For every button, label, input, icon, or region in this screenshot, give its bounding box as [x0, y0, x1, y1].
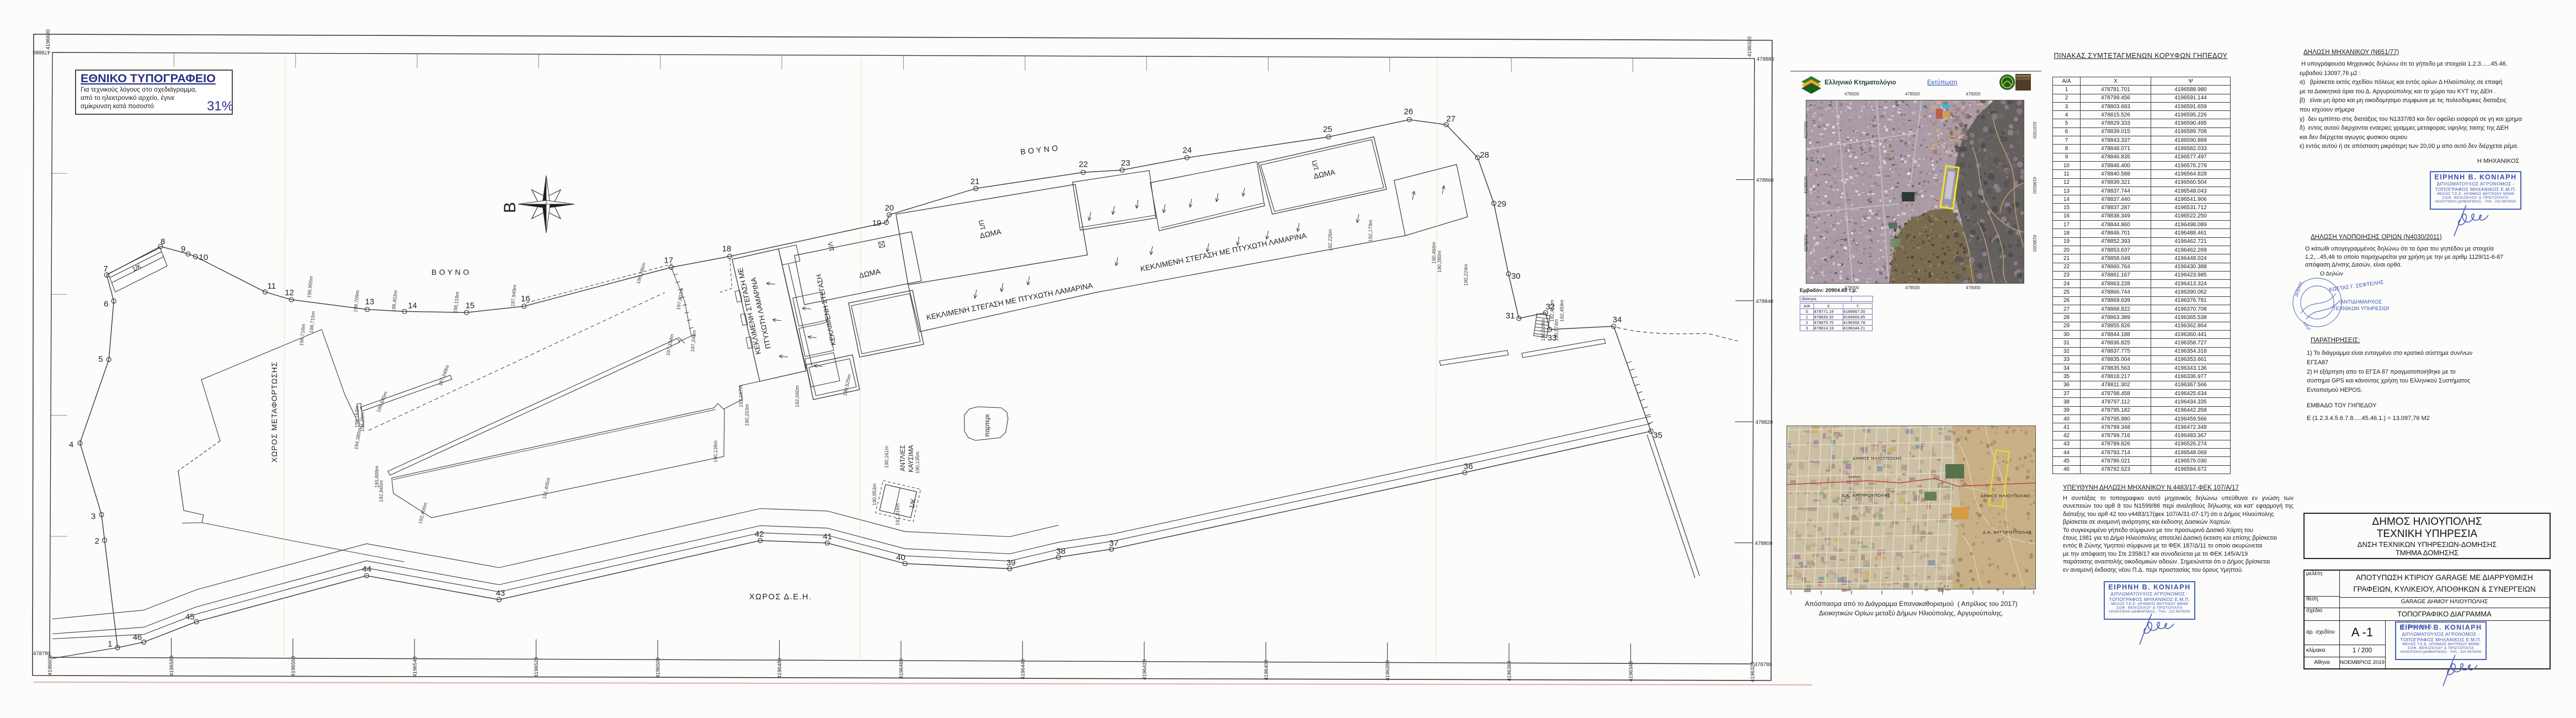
svg-text:4196500: 4196500: [655, 657, 662, 678]
svg-text:478780: 478780: [33, 651, 51, 657]
svg-text:192,040m: 192,040m: [794, 385, 800, 407]
svg-text:38: 38: [1057, 547, 1066, 556]
svg-text:43: 43: [496, 589, 505, 598]
svg-text:198,118m: 198,118m: [452, 291, 460, 313]
svg-text:4196520: 4196520: [534, 657, 540, 677]
svg-text:192,452m: 192,452m: [1549, 300, 1555, 322]
svg-text:ΒΟΥΝΟ: ΒΟΥΝΟ: [1020, 143, 1061, 156]
svg-text:198,196m: 198,196m: [635, 262, 647, 284]
svg-text:4196600: 4196600: [47, 655, 54, 676]
svg-text:4196540: 4196540: [412, 657, 418, 677]
svg-text:30: 30: [1511, 272, 1521, 281]
svg-text:Κ6: Κ6: [1940, 482, 1944, 485]
svg-text:190,525m: 190,525m: [842, 374, 852, 396]
svg-text:478780: 478780: [1754, 662, 1772, 668]
svg-text:197,802m: 197,802m: [675, 288, 685, 310]
svg-text:ΕΘΝΙΚΟ ΤΥΠΟΓΡΑΦΕΙΟ: ΕΘΝΙΚΟ ΤΥΠΟΓΡΑΦΕΙΟ: [81, 72, 216, 85]
svg-text:5: 5: [98, 355, 103, 364]
svg-text:4196360: 4196360: [1507, 661, 1513, 681]
svg-text:23: 23: [1121, 158, 1130, 168]
svg-text:Κ7: Κ7: [1961, 480, 1965, 483]
svg-text:ΧΩΡΟΣ Δ.Ε.Η.: ΧΩΡΟΣ Δ.Ε.Η.: [749, 593, 812, 602]
svg-text:28: 28: [1480, 151, 1489, 160]
svg-text:ΔΗΜΟΣ ΗΛΙΟΥΠΟΛΗΣ: ΔΗΜΟΣ ΗΛΙΟΥΠΟΛΗΣ: [1853, 456, 1902, 461]
svg-text:ΚΕΚΛΙΜΕΝΗ ΣΤΕΓΑΣΗ: ΚΕΚΛΙΜΕΝΗ ΣΤΕΓΑΣΗ: [815, 274, 838, 347]
svg-text:B: B: [501, 202, 519, 213]
svg-text:192,945m: 192,945m: [378, 480, 384, 502]
svg-text:Κ2: Κ2: [1902, 473, 1906, 476]
svg-text:ΒΟΥΝΟ: ΒΟΥΝΟ: [431, 268, 472, 276]
svg-text:6: 6: [104, 300, 108, 309]
svg-text:ΚΕΚΛΙΜΕΝΗ ΣΤΕΓΑΣΗ ΜΕ ΠΤΥΧΩΤΗ Λ: ΚΕΚΛΙΜΕΝΗ ΣΤΕΓΑΣΗ ΜΕ ΠΤΥΧΩΤΗ ΛΑΜΑΡΙΝΑ: [1140, 231, 1308, 273]
svg-text:1/Κ: 1/Κ: [908, 498, 918, 509]
svg-text:198,645m: 198,645m: [376, 391, 389, 413]
svg-text:1/Π: 1/Π: [1310, 159, 1320, 171]
svg-text:4196600: 4196600: [45, 29, 51, 50]
svg-text:ΔΗΜΟΣ ΗΛΙΟΥΠΟΛΗΣ: ΔΗΜΟΣ ΗΛΙΟΥΠΟΛΗΣ: [1981, 493, 2030, 498]
svg-text:3: 3: [91, 512, 95, 522]
svg-text:45: 45: [185, 613, 195, 622]
svg-text:22: 22: [1079, 159, 1088, 169]
svg-text:από το ηλεκτρονικό αρχείο, έγι: από το ηλεκτρονικό αρχείο, έγινε: [81, 94, 175, 102]
svg-text:190,466m: 190,466m: [1431, 242, 1437, 264]
svg-text:8: 8: [161, 237, 165, 247]
svg-text:20: 20: [885, 203, 894, 212]
svg-text:4196560: 4196560: [290, 656, 296, 677]
svg-text:46: 46: [133, 633, 142, 642]
svg-text:197,949m: 197,949m: [510, 284, 518, 307]
svg-text:σμίκρυνση κατά ποσοστό: σμίκρυνση κατά ποσοστό: [81, 102, 154, 110]
svg-text:19: 19: [872, 219, 882, 228]
svg-text:25: 25: [1323, 125, 1332, 134]
svg-text:4196460: 4196460: [899, 658, 905, 679]
svg-text:190,161m: 190,161m: [884, 446, 889, 468]
svg-text:194,386m: 194,386m: [353, 427, 362, 450]
svg-text:Για τεχνικούς λόγους στο σ: Για τεχνικούς λόγους στο σχεδιάγραμμα,: [81, 86, 197, 93]
svg-text:10: 10: [199, 253, 208, 262]
svg-text:4196340: 4196340: [1628, 661, 1634, 682]
svg-text:190,203m: 190,203m: [744, 404, 750, 426]
svg-text:21: 21: [970, 177, 980, 187]
svg-text:4196380: 4196380: [1385, 660, 1391, 680]
svg-text:42: 42: [755, 530, 764, 539]
svg-text:ΑΝΤΛΙΕΣ: ΑΝΤΛΙΕΣ: [900, 445, 906, 471]
svg-text:17: 17: [664, 256, 674, 265]
svg-text:34: 34: [1613, 315, 1622, 325]
svg-text:190,953m: 190,953m: [872, 483, 877, 506]
svg-text:ΑΝΤΙΔΗΜΑΡΧΟΣ: ΑΝΤΙΔΗΜΑΡΧΟΣ: [2340, 299, 2382, 305]
svg-text:198,716m: 198,716m: [298, 323, 306, 346]
svg-text:7: 7: [103, 264, 108, 274]
svg-text:4196580: 4196580: [169, 656, 175, 676]
svg-text:192,459m: 192,459m: [1559, 300, 1565, 322]
svg-text:478860: 478860: [1756, 177, 1774, 183]
svg-text:15: 15: [466, 301, 475, 310]
svg-text:ΤΕΧΝΙΚΩΝ ΥΠΗΡΕΣΙΩΝ: ΤΕΧΝΙΚΩΝ ΥΠΗΡΕΣΙΩΝ: [2333, 306, 2389, 312]
svg-text:197,248m: 197,248m: [690, 329, 697, 352]
svg-text:190,135m: 190,135m: [915, 451, 920, 474]
svg-text:Κ3: Κ3: [1886, 488, 1890, 492]
svg-text:4196480: 4196480: [777, 658, 783, 678]
svg-text:ΚΑΥΣΙΜΑ: ΚΑΥΣΙΜΑ: [908, 445, 915, 472]
svg-text:41: 41: [823, 532, 832, 541]
svg-text:Δ.Κ. ΑΡΓΥΡΟΥΠΟΛΗΣ: Δ.Κ. ΑΡΓΥΡΟΥΠΟΛΗΣ: [1983, 530, 2032, 535]
svg-text:198,709m: 198,709m: [353, 290, 360, 312]
svg-text:ΚΕΚΛΙΜΕΝΗ ΣΤΕΓΑΣΗ ΜΕ ΠΤΥΧΩΤΗ Λ: ΚΕΚΛΙΜΕΝΗ ΣΤΕΓΑΣΗ ΜΕ ΠΤΥΧΩΤΗ ΛΑΜΑΡΙΝΑ: [926, 281, 1094, 322]
svg-text:192,187m: 192,187m: [738, 385, 744, 407]
svg-text:31: 31: [1506, 311, 1515, 321]
svg-text:190,139m: 190,139m: [713, 440, 718, 462]
svg-text:190,380m: 190,380m: [1437, 251, 1442, 273]
svg-text:29: 29: [1497, 200, 1507, 209]
svg-text:31%: 31%: [207, 99, 233, 114]
svg-text:2: 2: [95, 536, 99, 546]
svg-text:4: 4: [69, 440, 73, 450]
svg-text:Δ.Κ. ΑΡΓΥΡΟΥΠΟΛΗΣ: Δ.Κ. ΑΡΓΥΡΟΥΠΟΛΗΣ: [1842, 493, 1891, 498]
svg-text:198,715m: 198,715m: [308, 311, 316, 333]
svg-text:198,905m: 198,905m: [306, 275, 314, 298]
svg-text:ΧΩΡΟΣ ΜΕΤΑΦΟΡΤΩΣΗΣ: ΧΩΡΟΣ ΜΕΤΑΦΟΡΤΩΣΗΣ: [270, 361, 279, 462]
svg-text:1/Λ: 1/Λ: [826, 241, 835, 253]
svg-text:1/Π: 1/Π: [977, 219, 987, 231]
svg-text:192,226m: 192,226m: [1327, 229, 1333, 251]
svg-text:11: 11: [268, 281, 276, 291]
svg-text:ΗΛΙΟΥΠΟΛΗΣ: ΗΛΙΟΥΠΟΛΗΣ: [2302, 321, 2323, 330]
svg-text:ΚΩΣΤΑΣ Γ. ΣΕΦΤΕΛΗΣ: ΚΩΣΤΑΣ Γ. ΣΕΦΤΕΛΗΣ: [2329, 279, 2384, 293]
svg-text:12: 12: [285, 288, 294, 297]
svg-text:192,179m: 192,179m: [1368, 220, 1373, 242]
svg-text:44: 44: [362, 565, 371, 574]
svg-text:24: 24: [1182, 146, 1192, 155]
svg-text:478880: 478880: [1757, 56, 1774, 62]
svg-text:191,405m: 191,405m: [541, 477, 551, 499]
svg-text:478820: 478820: [1756, 419, 1773, 426]
svg-text:26: 26: [1404, 107, 1414, 116]
svg-text:ΔΩΜΑ: ΔΩΜΑ: [858, 267, 882, 280]
svg-text:191,316m: 191,316m: [895, 503, 900, 525]
svg-text:18: 18: [722, 244, 732, 254]
svg-text:1: 1: [108, 640, 112, 649]
svg-text:Κ4: Κ4: [1918, 485, 1922, 488]
svg-text:1/Κ: 1/Κ: [131, 263, 143, 273]
svg-text:190,569m: 190,569m: [1540, 319, 1546, 341]
svg-text:9: 9: [181, 244, 185, 254]
svg-text:14: 14: [408, 301, 417, 310]
svg-text:478800: 478800: [1755, 541, 1773, 547]
svg-text:4196420: 4196420: [1142, 660, 1148, 680]
svg-text:199,162m: 199,162m: [354, 406, 360, 428]
svg-text:198,453m: 198,453m: [391, 290, 398, 312]
svg-text:4196440: 4196440: [1020, 659, 1026, 679]
svg-text:παρτερι: παρτερι: [983, 414, 991, 437]
svg-text:192,400m: 192,400m: [417, 502, 428, 524]
svg-text:13: 13: [365, 297, 375, 307]
svg-text:27: 27: [1446, 114, 1455, 124]
svg-text:197,348m: 197,348m: [438, 364, 451, 387]
svg-text:ΔΑΦΝΗΣ: ΔΑΦΝΗΣ: [1848, 476, 1862, 479]
svg-text:4196400: 4196400: [1263, 660, 1270, 680]
svg-text:478840: 478840: [1756, 299, 1773, 305]
svg-text:35: 35: [1653, 430, 1662, 440]
svg-text:4196320: 4196320: [1747, 36, 1753, 57]
svg-text:190,224m: 190,224m: [1463, 264, 1469, 286]
